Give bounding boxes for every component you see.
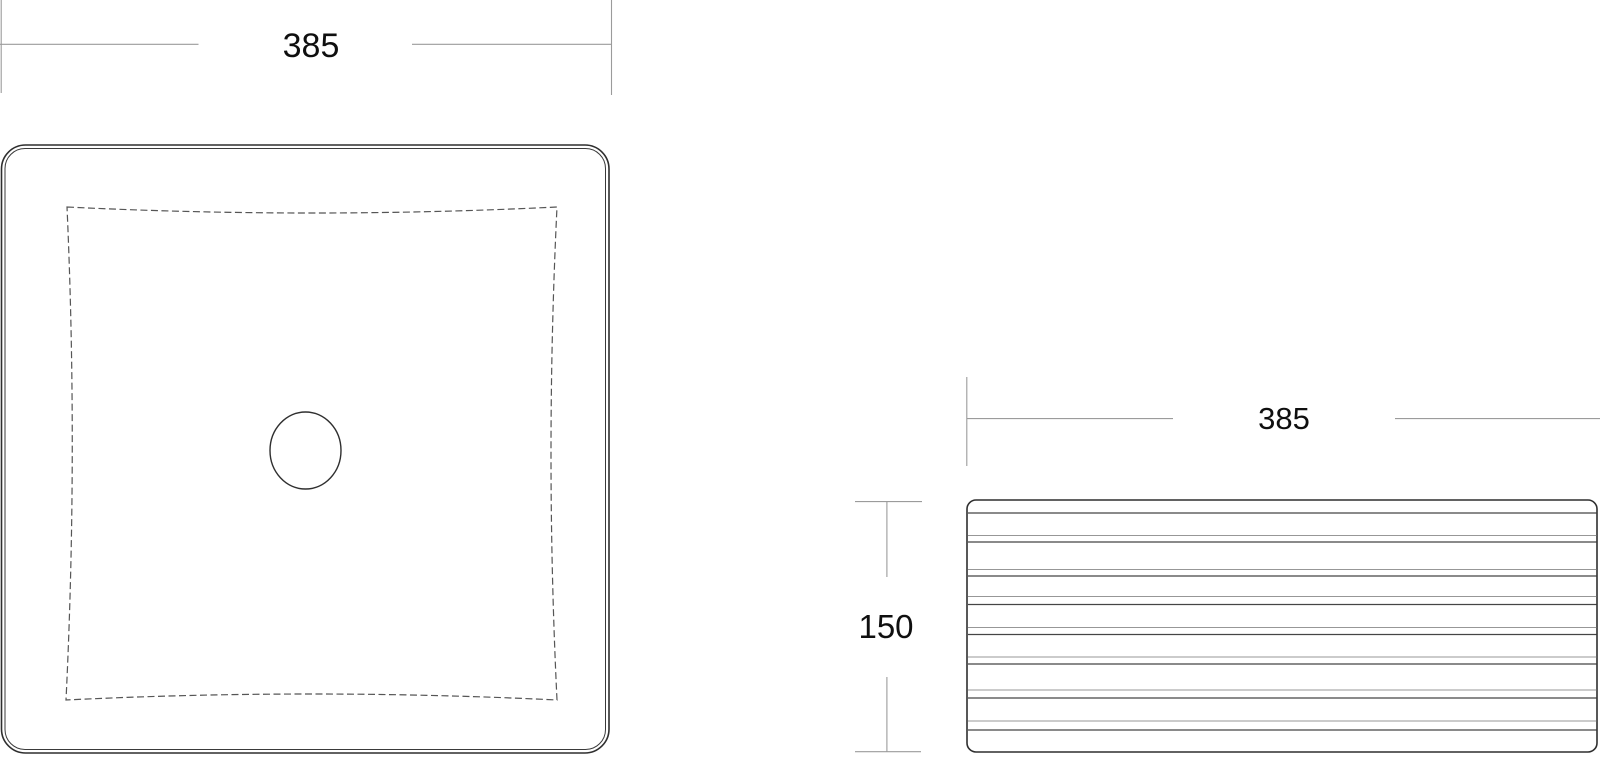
side-view-body (967, 500, 1597, 752)
top-view-width-dimension: 385 (0, 0, 612, 95)
drain-hole (270, 412, 341, 489)
side-view-width-dimension: 385 (967, 377, 1600, 466)
top-view-outer-rim-inner-line (5, 149, 606, 750)
technical-drawing-page: 385 (0, 0, 1600, 757)
top-view-outer-rim (2, 145, 610, 753)
side-view-height-dimension: 150 (855, 502, 922, 752)
side-view-width-label: 385 (1258, 401, 1310, 436)
basin-technical-drawing: 385 (0, 0, 1600, 757)
side-view-rib-lines (968, 513, 1597, 730)
side-view: 385 150 (855, 377, 1600, 752)
top-view: 385 (0, 0, 612, 753)
basin-inner-edge (66, 207, 557, 700)
top-view-width-label: 385 (283, 27, 340, 65)
side-view-height-label: 150 (858, 608, 913, 645)
